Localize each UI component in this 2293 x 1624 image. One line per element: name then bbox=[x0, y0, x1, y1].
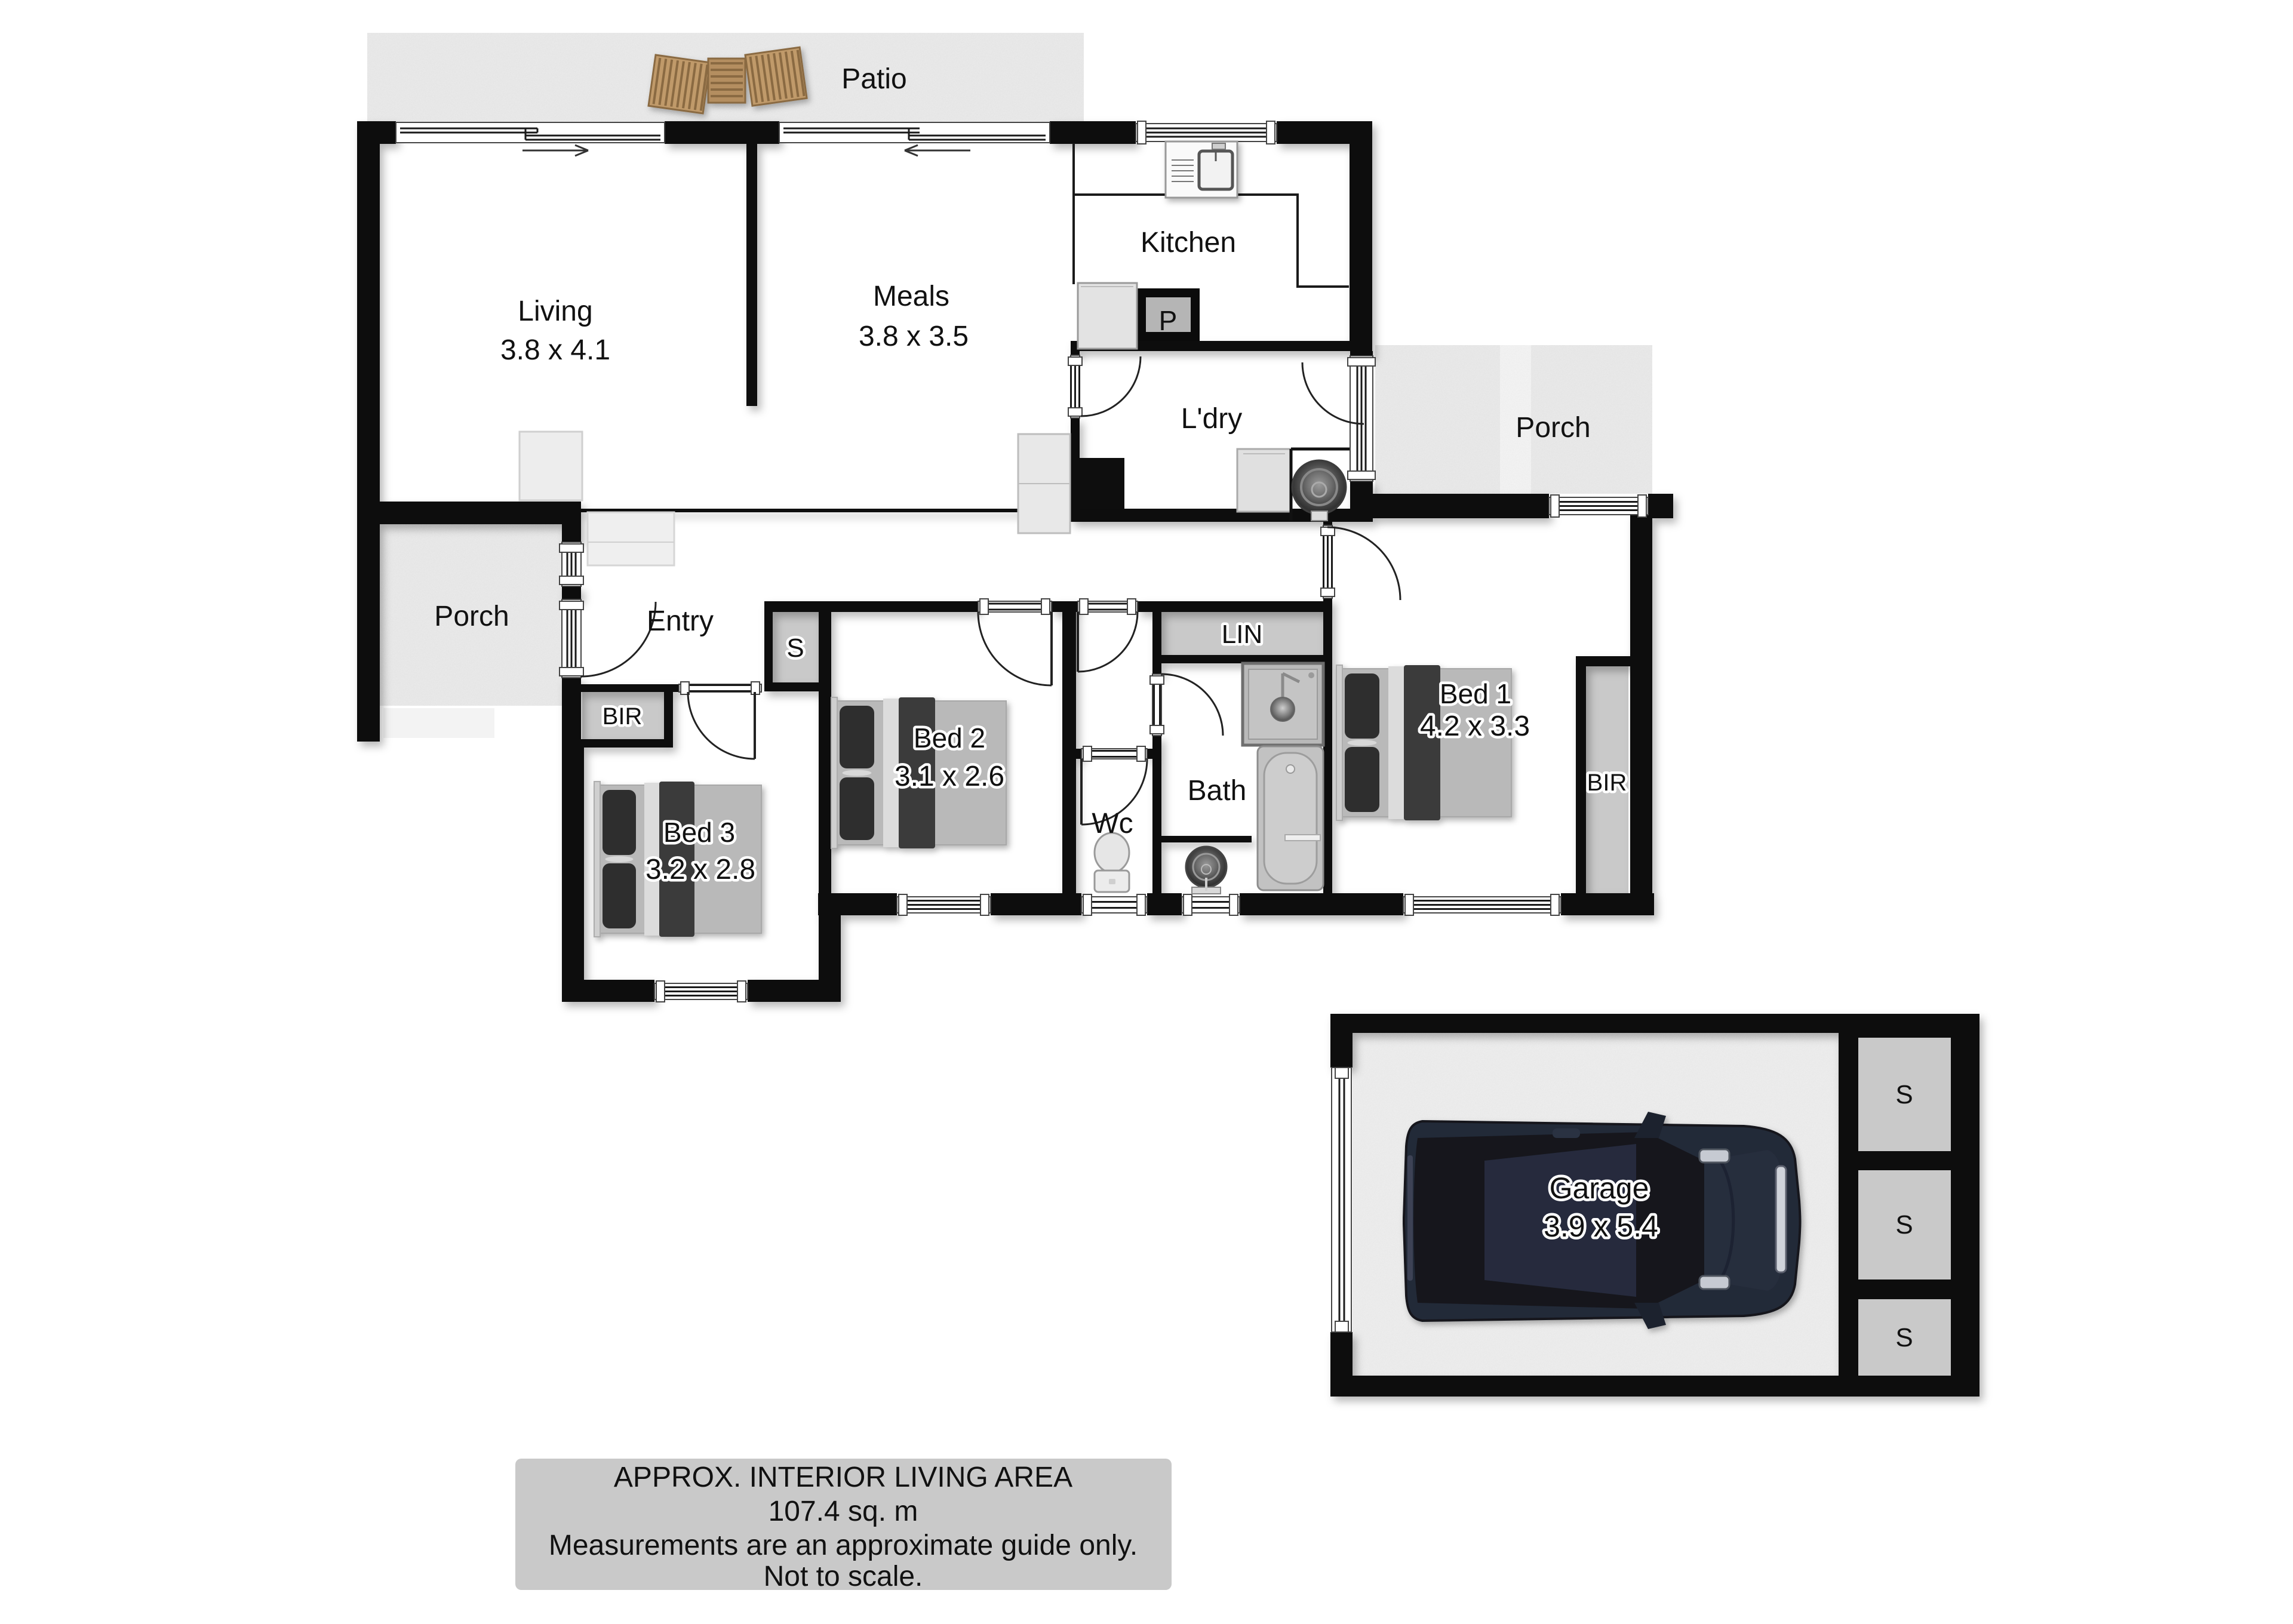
svg-text:Entry: Entry bbox=[647, 605, 714, 637]
svg-text:Bed 2: Bed 2 bbox=[914, 722, 985, 753]
svg-text:Porch: Porch bbox=[434, 601, 509, 632]
svg-text:BIR: BIR bbox=[603, 703, 643, 730]
svg-text:3.8 x 4.1: 3.8 x 4.1 bbox=[500, 334, 610, 366]
svg-text:4.2 x 3.3: 4.2 x 3.3 bbox=[1420, 710, 1530, 742]
svg-text:3.2 x 2.8: 3.2 x 2.8 bbox=[646, 854, 755, 885]
svg-text:APPROX. INTERIOR LIVING AREA: APPROX. INTERIOR LIVING AREA bbox=[614, 1462, 1072, 1493]
svg-text:BIR: BIR bbox=[1587, 770, 1627, 796]
svg-text:S: S bbox=[1895, 1210, 1913, 1239]
svg-text:Living: Living bbox=[518, 296, 592, 327]
svg-text:Porch: Porch bbox=[1516, 412, 1590, 444]
svg-text:Bed 1: Bed 1 bbox=[1440, 678, 1511, 709]
svg-text:Measurements are an approximat: Measurements are an approximate guide on… bbox=[549, 1530, 1138, 1561]
svg-text:Patio: Patio bbox=[841, 63, 906, 95]
svg-text:Bed 3: Bed 3 bbox=[663, 817, 735, 848]
svg-text:Garage: Garage bbox=[1550, 1171, 1649, 1205]
svg-text:P: P bbox=[1159, 305, 1178, 336]
svg-text:S: S bbox=[1895, 1323, 1913, 1352]
svg-text:L'dry: L'dry bbox=[1181, 403, 1243, 435]
svg-text:3.8 x 3.5: 3.8 x 3.5 bbox=[859, 321, 969, 352]
svg-text:107.4 sq. m: 107.4 sq. m bbox=[769, 1496, 918, 1527]
svg-text:Bath: Bath bbox=[1188, 775, 1247, 807]
svg-text:LIN: LIN bbox=[1222, 620, 1262, 649]
svg-text:Not to scale.: Not to scale. bbox=[764, 1561, 923, 1592]
svg-text:Kitchen: Kitchen bbox=[1141, 227, 1236, 259]
svg-text:S: S bbox=[1895, 1080, 1913, 1109]
svg-text:S: S bbox=[786, 633, 804, 663]
svg-text:3.1 x 2.6: 3.1 x 2.6 bbox=[895, 761, 1004, 792]
svg-text:Meals: Meals bbox=[873, 281, 949, 312]
svg-text:Wc: Wc bbox=[1092, 808, 1133, 839]
svg-text:3.9 x 5.4: 3.9 x 5.4 bbox=[1544, 1210, 1658, 1243]
